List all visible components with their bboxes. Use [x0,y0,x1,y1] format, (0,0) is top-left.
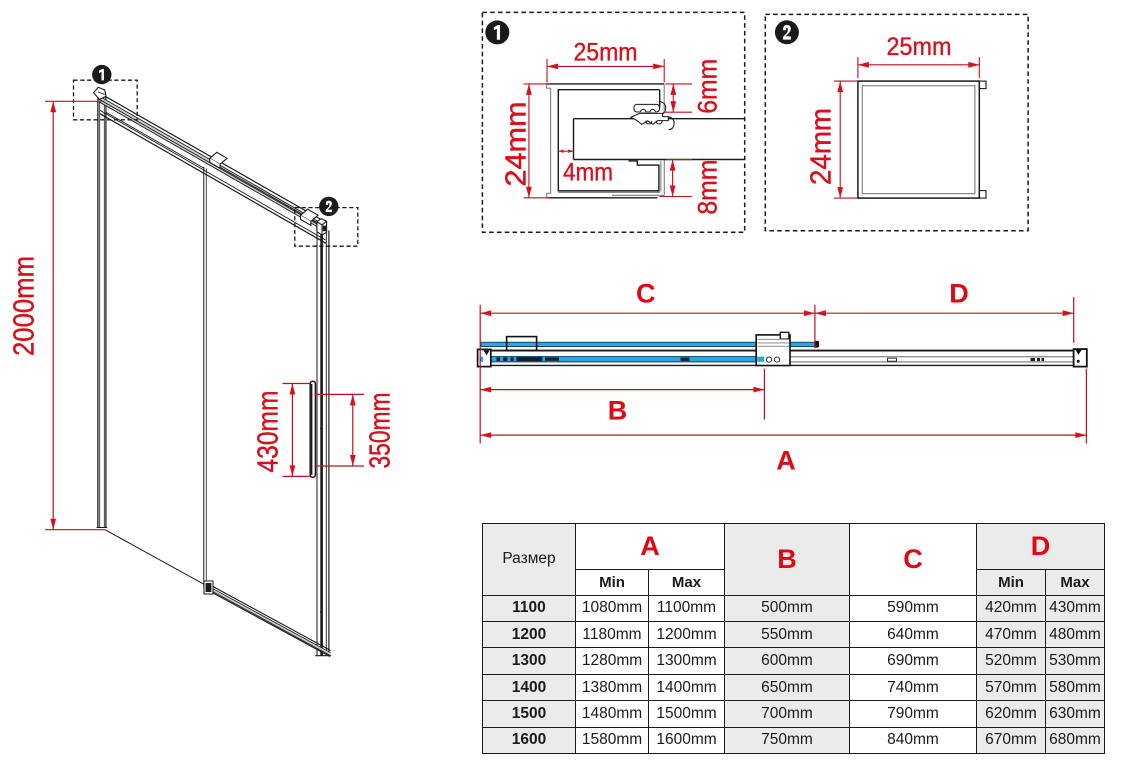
svg-text:24mm: 24mm [806,108,838,185]
svg-text:350mm: 350mm [365,393,397,469]
svg-text:C: C [636,279,656,309]
svg-text:25mm: 25mm [574,39,638,67]
svg-text:D: D [949,279,969,309]
svg-text:4mm: 4mm [563,159,613,187]
svg-text:24mm: 24mm [501,102,533,187]
svg-text:8mm: 8mm [693,160,723,215]
svg-text:2000mm: 2000mm [9,256,41,356]
svg-text:6mm: 6mm [693,59,723,114]
svg-text:25mm: 25mm [887,33,952,61]
svg-text:B: B [608,396,628,426]
svg-text:430mm: 430mm [253,391,285,473]
svg-text:A: A [776,446,796,476]
